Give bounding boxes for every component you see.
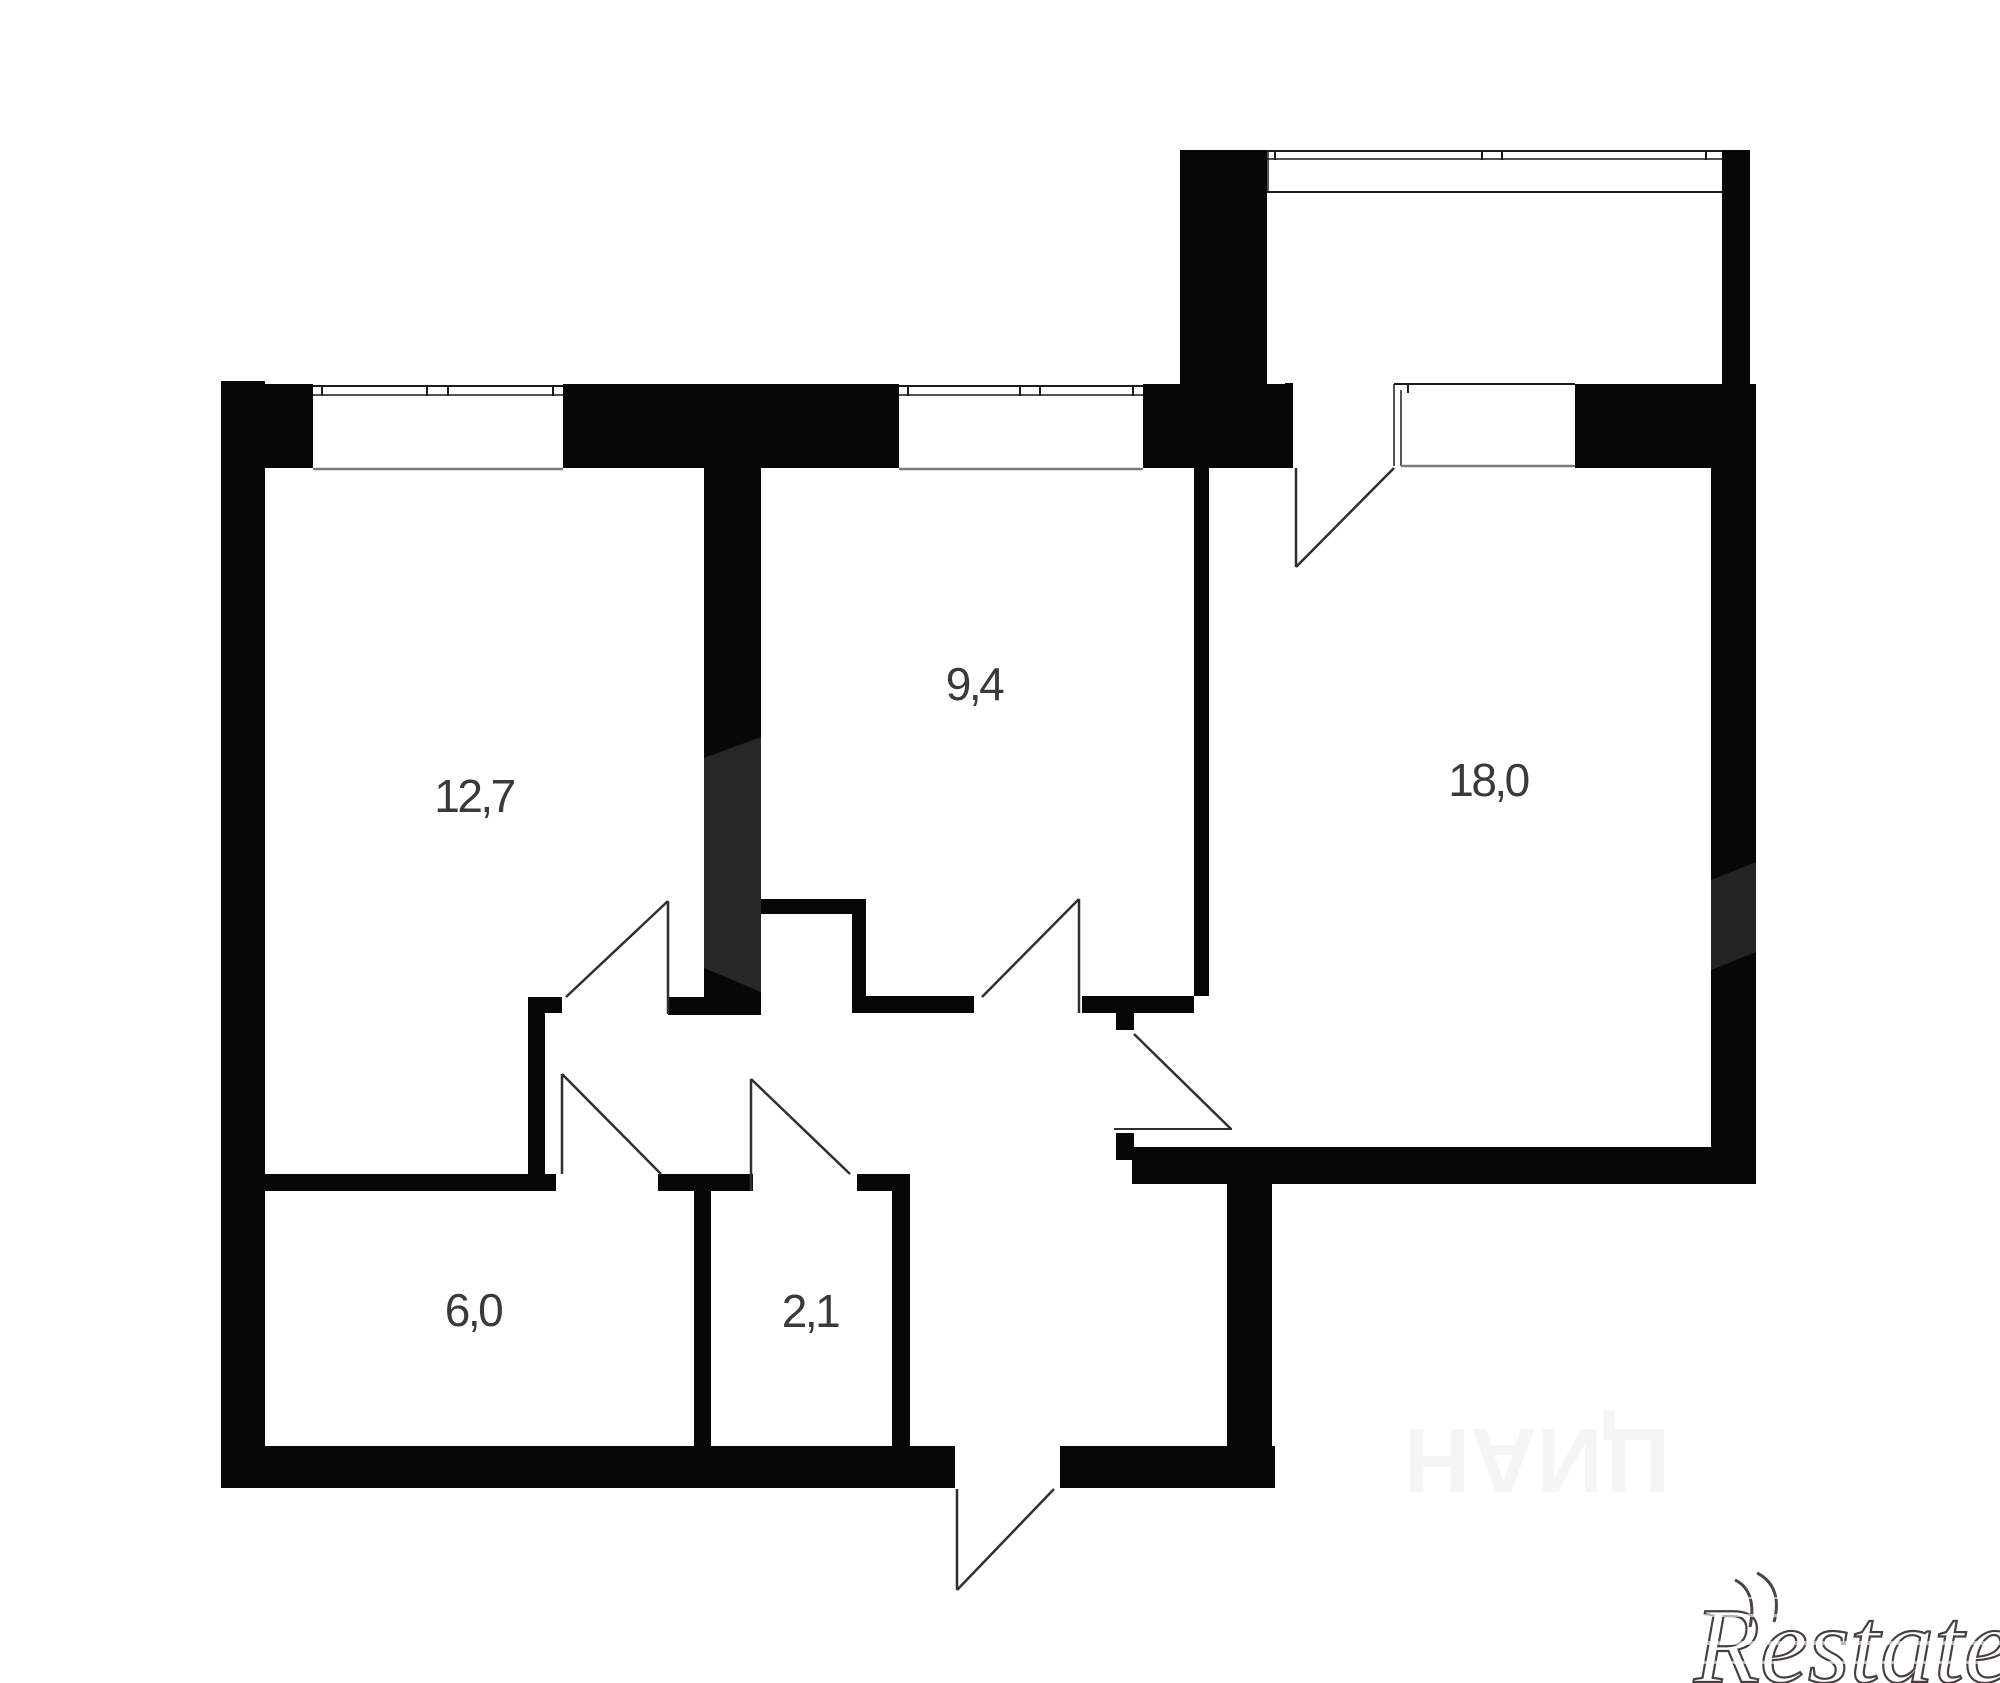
svg-text:9,4: 9,4 xyxy=(946,658,1004,710)
svg-text:2,1: 2,1 xyxy=(782,1285,839,1337)
svg-text:6,0: 6,0 xyxy=(445,1284,502,1336)
svg-text:12,7: 12,7 xyxy=(434,770,514,822)
svg-text:18,0: 18,0 xyxy=(1448,754,1528,806)
svg-text:ЦИАН: ЦИАН xyxy=(1404,1409,1670,1511)
svg-text:Restate: Restate xyxy=(1693,1587,2000,1683)
